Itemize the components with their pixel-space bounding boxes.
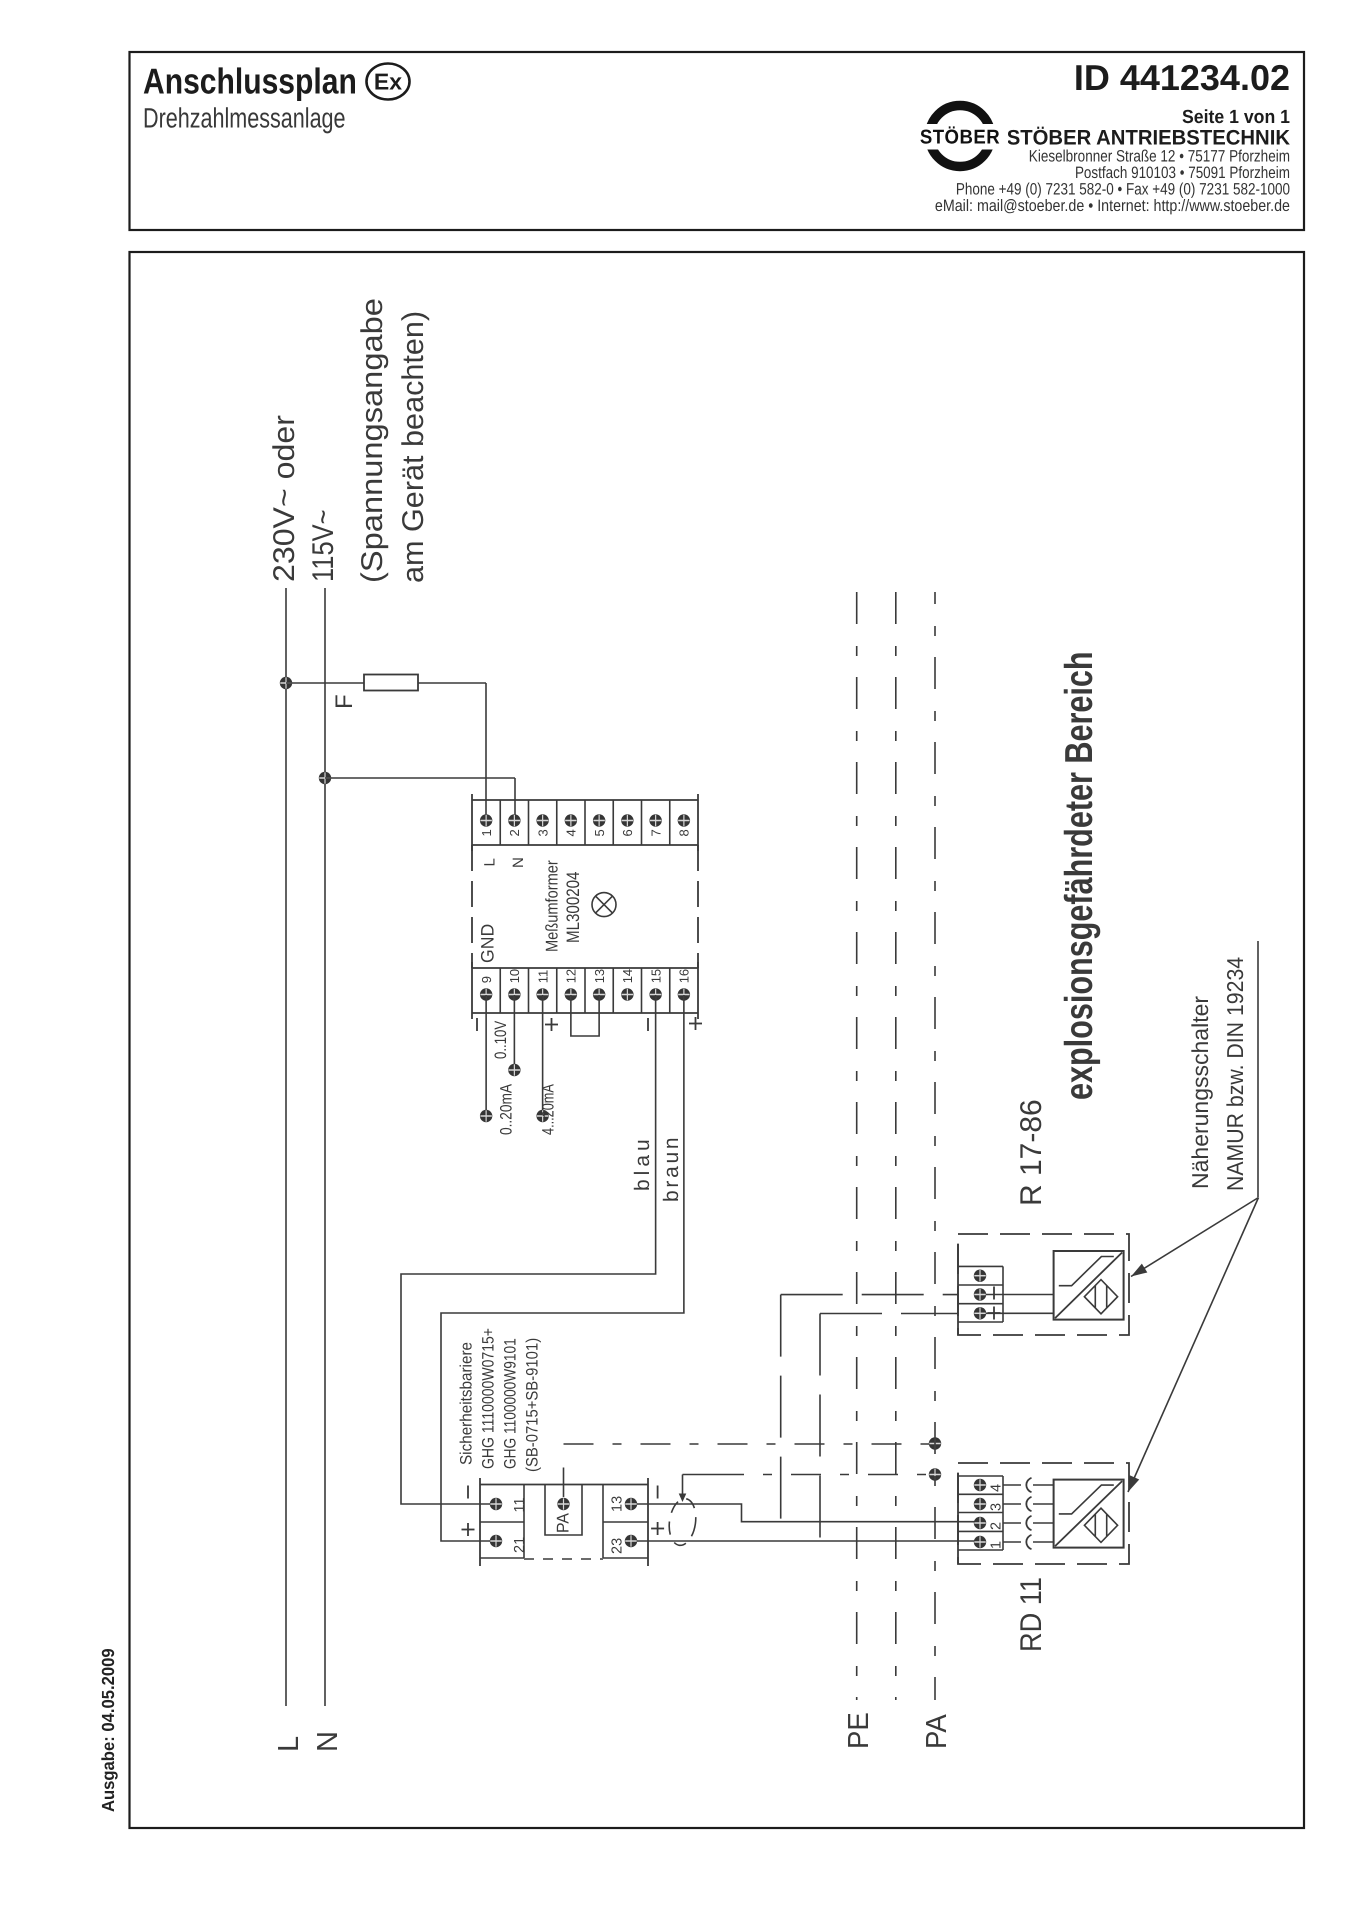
svg-text:1: 1 [989, 1541, 1005, 1549]
svg-text:10: 10 [507, 969, 522, 983]
svg-text:blau: blau [631, 1135, 654, 1191]
svg-text:Drehzahlmessanlage: Drehzahlmessanlage [143, 103, 346, 134]
svg-text:3: 3 [535, 829, 550, 836]
svg-text:NAMUR bzw. DIN 19234: NAMUR bzw. DIN 19234 [1222, 957, 1248, 1191]
svg-text:9: 9 [479, 976, 494, 983]
svg-text:GHG 1100000W9101: GHG 1100000W9101 [502, 1338, 520, 1469]
svg-text:4: 4 [564, 829, 579, 836]
svg-text:6: 6 [620, 829, 635, 836]
svg-text:0..20mA: 0..20mA [498, 1084, 516, 1135]
svg-text:eMail: mail@stoeber.de • Inter: eMail: mail@stoeber.de • Internet: http:… [935, 197, 1290, 215]
svg-text:GHG 1110000W0715+: GHG 1110000W0715+ [480, 1328, 498, 1469]
svg-text:Ausgabe: 04.05.2009: Ausgabe: 04.05.2009 [98, 1648, 118, 1812]
svg-text:N: N [510, 857, 527, 868]
svg-text:PA: PA [554, 1512, 573, 1533]
svg-text:12: 12 [564, 969, 579, 983]
svg-text:13: 13 [610, 1496, 626, 1512]
svg-text:115V~: 115V~ [307, 509, 340, 582]
svg-text:F: F [331, 694, 358, 709]
svg-text:N: N [312, 1731, 344, 1752]
svg-text:1: 1 [479, 829, 494, 836]
svg-text:STÖBER ANTRIEBSTECHNIK: STÖBER ANTRIEBSTECHNIK [1007, 127, 1290, 150]
svg-text:explosionsgefährdeter Bereich: explosionsgefährdeter Bereich [1058, 651, 1101, 1100]
svg-text:0..10V: 0..10V [492, 1021, 510, 1059]
svg-text:Seite 1 von 1: Seite 1 von 1 [1182, 107, 1290, 128]
svg-text:Phone +49 (0) 7231 582-0 • Fax: Phone +49 (0) 7231 582-0 • Fax +49 (0) 7… [956, 181, 1290, 199]
svg-text:230V~ oder: 230V~ oder [268, 415, 301, 582]
svg-text:Näherungsschalter: Näherungsschalter [1187, 996, 1213, 1189]
svg-text:STÖBER: STÖBER [920, 126, 1000, 149]
svg-text:RD 11: RD 11 [1015, 1577, 1048, 1652]
svg-text:13: 13 [592, 969, 607, 983]
svg-text:Postfach 910103 • 75091 Pforzh: Postfach 910103 • 75091 Pforzheim [1075, 164, 1290, 182]
svg-text:7: 7 [648, 829, 663, 836]
svg-text:Meßumformer: Meßumformer [543, 860, 562, 952]
svg-text:16: 16 [677, 969, 692, 983]
svg-text:Ex: Ex [374, 69, 402, 95]
svg-text:PA: PA [921, 1714, 953, 1749]
svg-text:3: 3 [989, 1503, 1005, 1511]
svg-text:PE: PE [843, 1712, 875, 1749]
svg-text:am Gerät beachten): am Gerät beachten) [397, 311, 430, 583]
svg-text:15: 15 [648, 969, 663, 983]
svg-text:2: 2 [989, 1522, 1005, 1530]
svg-text:11: 11 [512, 1497, 528, 1512]
svg-text:2: 2 [507, 829, 522, 836]
svg-text:21: 21 [512, 1537, 528, 1553]
svg-text:R 17-86: R 17-86 [1015, 1099, 1048, 1206]
svg-text:L: L [273, 1736, 305, 1752]
svg-text:braun: braun [660, 1135, 683, 1202]
svg-text:(SB-0715+SB-9101): (SB-0715+SB-9101) [524, 1338, 542, 1472]
svg-text:GND: GND [478, 924, 498, 963]
svg-text:11: 11 [535, 970, 550, 984]
svg-text:ID 441234.02: ID 441234.02 [1074, 57, 1290, 98]
svg-text:Kieselbronner Straße 12 • 7517: Kieselbronner Straße 12 • 75177 Pforzhei… [1029, 148, 1290, 166]
svg-text:14: 14 [620, 969, 635, 983]
svg-text:5: 5 [592, 829, 607, 836]
svg-text:Anschlussplan: Anschlussplan [143, 61, 357, 102]
svg-text:4: 4 [989, 1484, 1005, 1492]
svg-text:8: 8 [677, 829, 692, 836]
svg-text:ML300204: ML300204 [563, 872, 583, 943]
svg-text:4...20mA: 4...20mA [540, 1084, 558, 1135]
svg-text:Sicherheitsbariere: Sicherheitsbariere [458, 1342, 476, 1465]
svg-text:(Spannungsangabe: (Spannungsangabe [356, 298, 389, 583]
svg-text:23: 23 [610, 1538, 626, 1554]
svg-text:L: L [482, 858, 499, 866]
